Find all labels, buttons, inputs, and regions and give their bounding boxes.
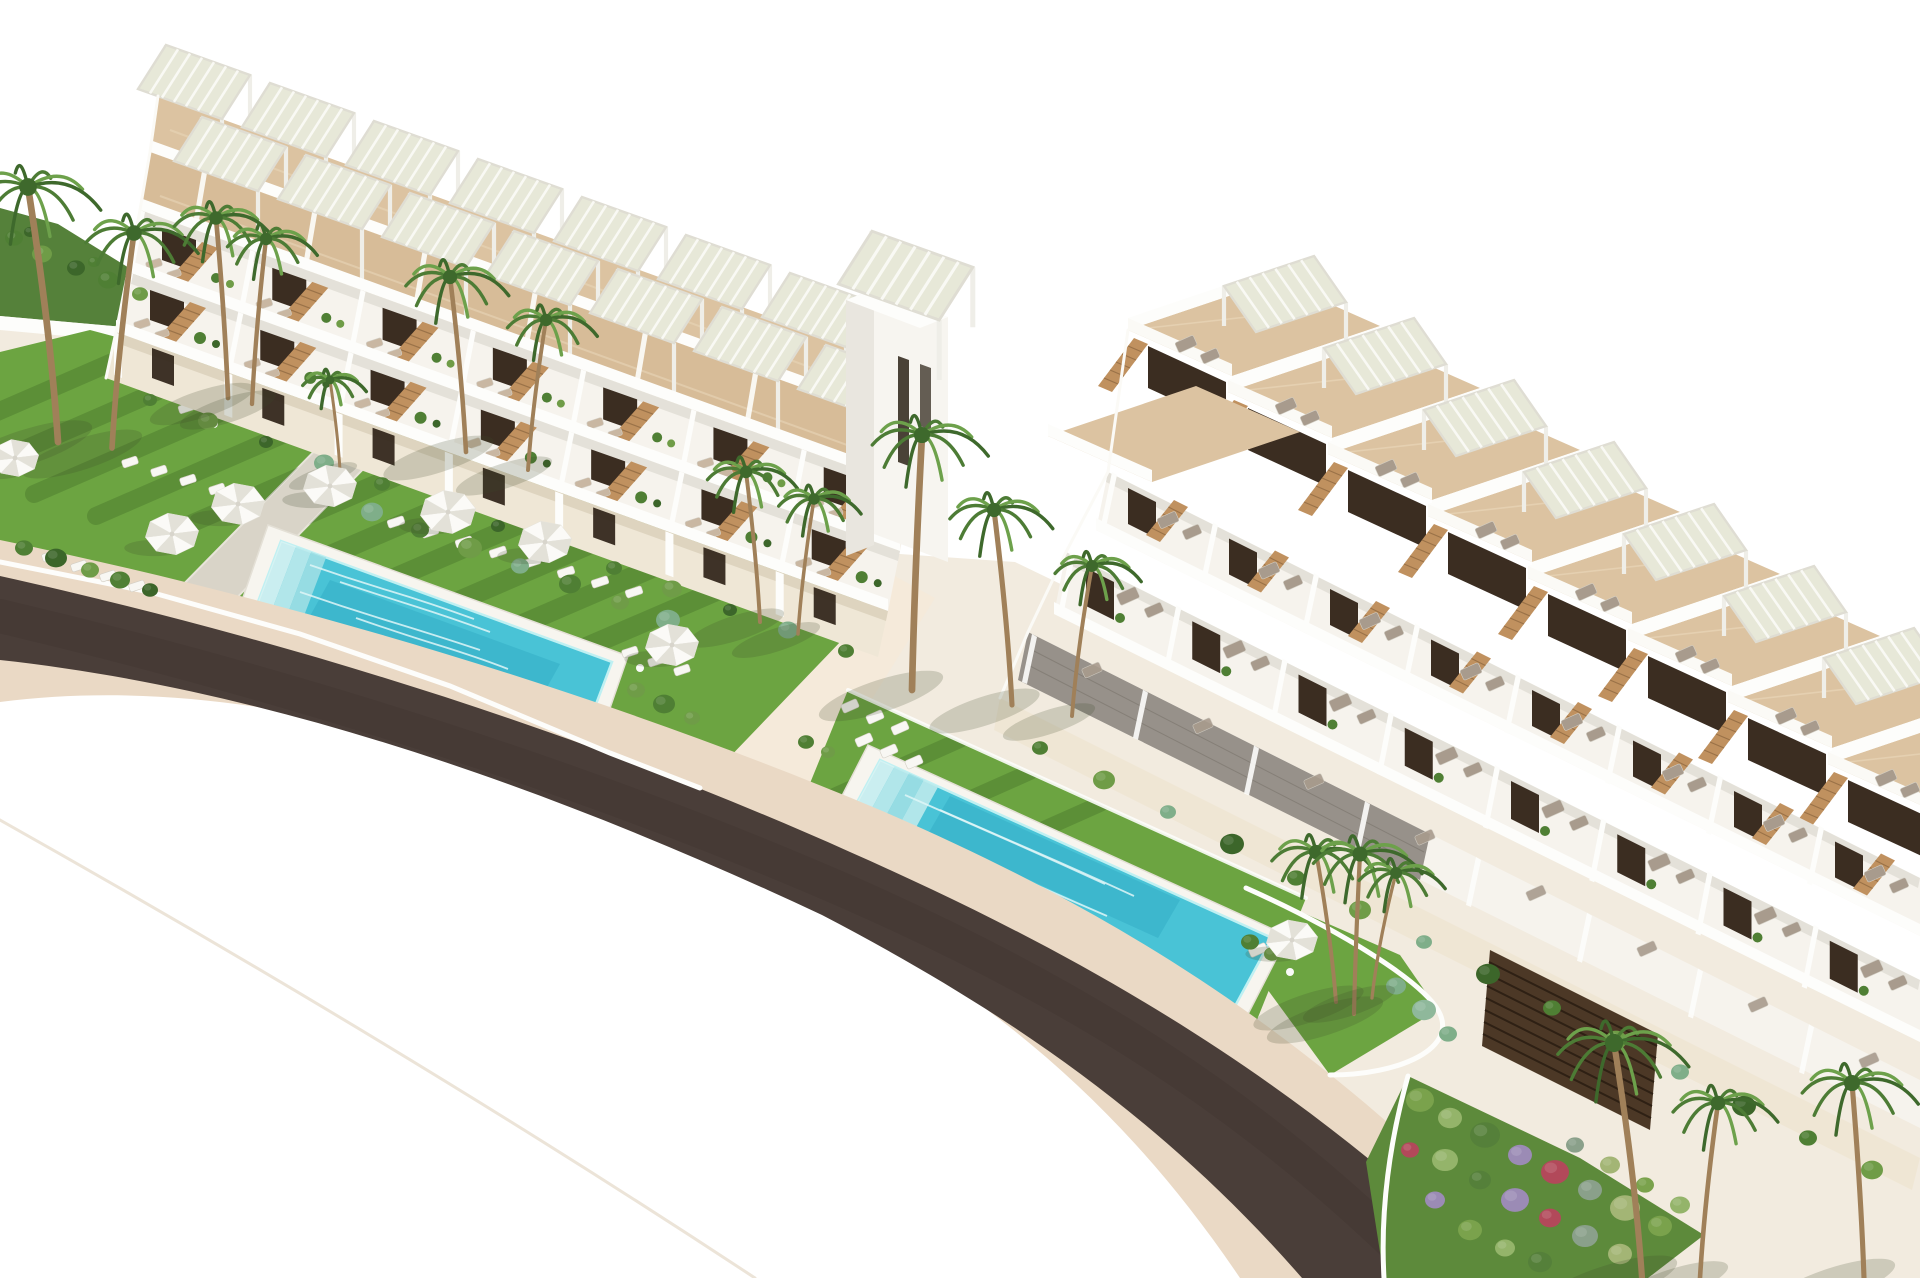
road-far-edge-line: [0, 820, 755, 1278]
resort-aerial-render: [0, 0, 1920, 1278]
buildingA-end-tower-side: [846, 289, 874, 556]
buildingA-tower-window-1: [898, 356, 909, 466]
buildingA-tower-window-2: [920, 364, 931, 430]
architectural-render-viewport: [0, 0, 1920, 1278]
